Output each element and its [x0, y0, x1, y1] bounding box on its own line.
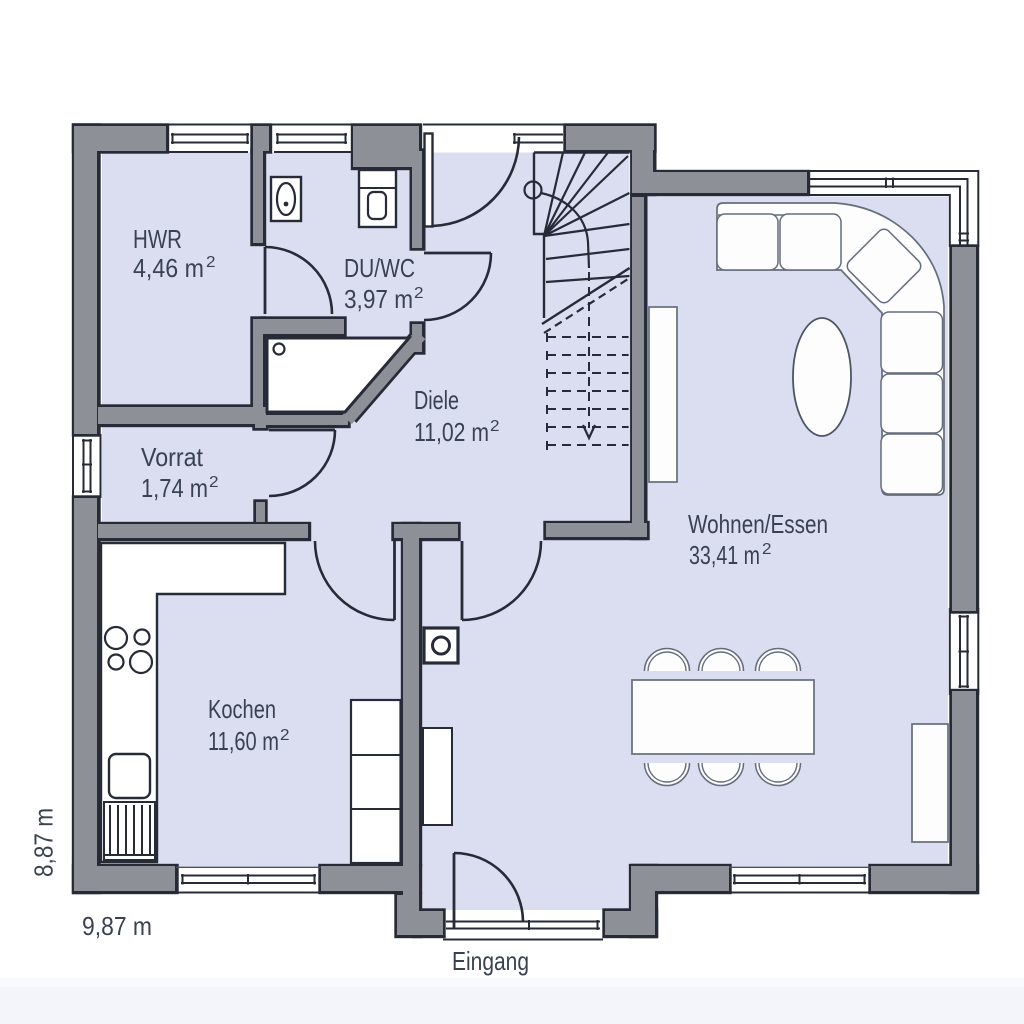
svg-text:2: 2 [414, 285, 424, 302]
svg-text:Wohnen/Essen: Wohnen/Essen [688, 509, 828, 539]
svg-text:Eingang: Eingang [452, 946, 529, 976]
svg-text:2: 2 [209, 474, 219, 491]
svg-text:2: 2 [280, 727, 290, 744]
svg-text:2: 2 [490, 418, 500, 435]
svg-text:3,97 m: 3,97 m [344, 284, 413, 314]
svg-text:2: 2 [206, 254, 216, 271]
svg-text:33,41 m: 33,41 m [689, 540, 760, 570]
svg-text:HWR: HWR [133, 224, 182, 254]
svg-text:DU/WC: DU/WC [344, 253, 415, 283]
svg-text:8,87 m: 8,87 m [29, 808, 59, 877]
svg-text:Diele: Diele [414, 385, 459, 415]
svg-text:1,74 m: 1,74 m [141, 473, 208, 503]
svg-text:Kochen: Kochen [208, 694, 276, 724]
svg-text:11,60 m: 11,60 m [208, 726, 279, 756]
svg-text:Vorrat: Vorrat [141, 442, 204, 472]
svg-text:11,02 m: 11,02 m [414, 417, 489, 447]
svg-text:2: 2 [762, 541, 772, 558]
svg-text:4,46 m: 4,46 m [133, 253, 204, 283]
svg-text:9,87 m: 9,87 m [82, 911, 152, 941]
